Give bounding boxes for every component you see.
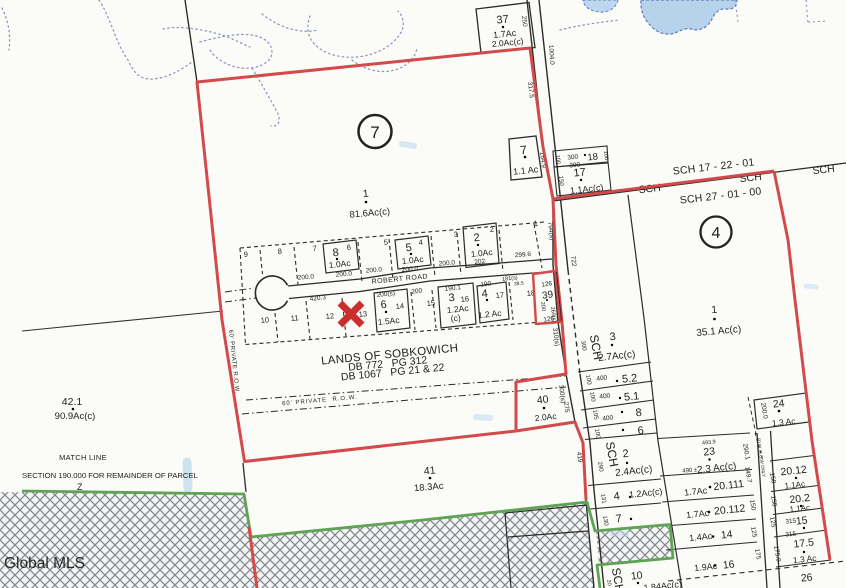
svg-text:SECTION 190.000 FOR REMAINDER: SECTION 190.000 FOR REMAINDER OF PARCEL <box>22 471 199 480</box>
svg-text:200.0: 200.0 <box>439 259 456 267</box>
svg-text:100: 100 <box>602 151 609 161</box>
svg-text:200: 200 <box>539 302 546 312</box>
svg-text:7: 7 <box>615 513 622 526</box>
svg-text:200.0: 200.0 <box>336 270 353 278</box>
svg-text:300: 300 <box>567 153 579 161</box>
svg-text:1: 1 <box>711 304 718 316</box>
svg-text:(c): (c) <box>450 313 461 324</box>
svg-text:20: 20 <box>605 579 612 586</box>
svg-text:3: 3 <box>609 331 616 344</box>
svg-text:315: 315 <box>785 530 797 538</box>
svg-text:16: 16 <box>722 558 735 571</box>
svg-text:40: 40 <box>536 393 549 406</box>
svg-text:12: 12 <box>325 311 334 321</box>
svg-text:400: 400 <box>596 374 608 382</box>
svg-text:17: 17 <box>573 166 586 179</box>
svg-text:38.5: 38.5 <box>514 280 525 287</box>
svg-text:200.0: 200.0 <box>402 265 419 273</box>
svg-text:202: 202 <box>474 258 486 266</box>
svg-text:23: 23 <box>703 445 716 458</box>
svg-text:6: 6 <box>637 425 644 438</box>
svg-text:400: 400 <box>599 392 611 400</box>
svg-text:1004.0: 1004.0 <box>547 45 555 66</box>
svg-text:41: 41 <box>423 465 436 478</box>
svg-text:26: 26 <box>800 571 813 584</box>
svg-text:10: 10 <box>630 569 643 582</box>
svg-text:90.9Ac(c): 90.9Ac(c) <box>55 411 96 422</box>
svg-text:Global MLS: Global MLS <box>4 555 85 572</box>
svg-text:200.0: 200.0 <box>298 273 315 281</box>
svg-text:6: 6 <box>380 299 387 312</box>
svg-text:4: 4 <box>712 225 721 242</box>
svg-text:13: 13 <box>358 309 367 319</box>
svg-text:8: 8 <box>635 407 642 420</box>
svg-text:15: 15 <box>426 298 435 308</box>
svg-text:5.2: 5.2 <box>621 372 637 386</box>
svg-text:5.1: 5.1 <box>623 390 639 404</box>
svg-text:11: 11 <box>290 313 299 323</box>
svg-text:3: 3 <box>448 292 455 305</box>
svg-text:1: 1 <box>362 188 369 200</box>
svg-text:4: 4 <box>481 288 488 301</box>
svg-text:299.6: 299.6 <box>515 251 532 259</box>
svg-text:7: 7 <box>370 123 379 142</box>
svg-text:722: 722 <box>569 255 577 267</box>
svg-text:250: 250 <box>520 15 528 27</box>
svg-text:14: 14 <box>395 301 404 311</box>
svg-text:4: 4 <box>613 490 620 503</box>
svg-text:5: 5 <box>405 242 412 255</box>
svg-text:150: 150 <box>557 176 564 187</box>
svg-text:200.0: 200.0 <box>366 266 383 274</box>
svg-text:24: 24 <box>772 397 785 410</box>
svg-text:18: 18 <box>587 151 599 163</box>
svg-text:17: 17 <box>495 290 504 300</box>
svg-text:275: 275 <box>562 401 570 413</box>
svg-text:42.1: 42.1 <box>62 396 83 408</box>
svg-text:15: 15 <box>795 514 808 527</box>
svg-text:SCH: SCH <box>812 163 835 177</box>
svg-text:200: 200 <box>411 287 423 295</box>
svg-text:2: 2 <box>622 448 629 461</box>
svg-text:17.5: 17.5 <box>793 536 815 550</box>
svg-text:MATCH LINE: MATCH LINE <box>59 453 107 462</box>
svg-text:37: 37 <box>496 13 509 26</box>
svg-text:2: 2 <box>473 232 480 245</box>
svg-text:100: 100 <box>554 155 561 165</box>
svg-text:14: 14 <box>720 528 733 541</box>
svg-text:10: 10 <box>260 315 269 325</box>
svg-text:400: 400 <box>602 414 614 422</box>
svg-text:8: 8 <box>332 247 339 260</box>
